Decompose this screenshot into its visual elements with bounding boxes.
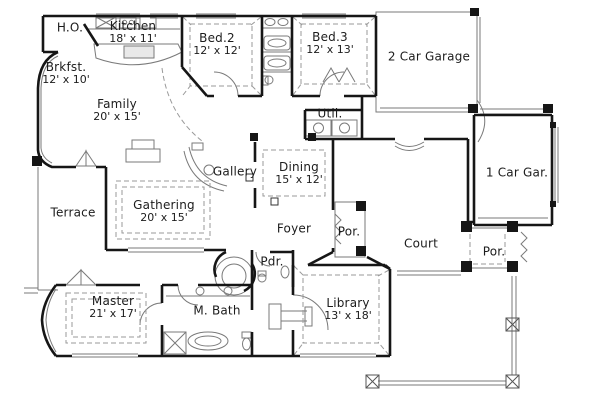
room-label-terrace: Terrace xyxy=(50,206,95,219)
room-label-pdr: Pdr. xyxy=(260,255,283,268)
room-labels: H.O. Kitchen18' x 11' Bed.212' x 12' Bed… xyxy=(0,0,600,401)
room-label-util: Util. xyxy=(318,107,343,120)
room-label-court: Court xyxy=(404,237,438,250)
floor-plan: H.O. Kitchen18' x 11' Bed.212' x 12' Bed… xyxy=(0,0,600,401)
room-label-master: Master21' x 17' xyxy=(89,295,137,321)
room-label-family: Family20' x 15' xyxy=(93,98,141,124)
room-label-ho: H.O. xyxy=(57,21,83,34)
room-label-mbath: M. Bath xyxy=(193,304,240,317)
room-label-por-front: Por. xyxy=(338,225,361,238)
room-label-gallery: Gallery xyxy=(213,165,257,178)
room-label-garage1: 1 Car Gar. xyxy=(486,166,548,179)
room-label-por-right: Por. xyxy=(483,245,506,258)
room-label-garage2: 2 Car Garage xyxy=(388,50,470,63)
room-label-library: Library13' x 18' xyxy=(324,297,372,323)
room-label-gathering: Gathering20' x 15' xyxy=(133,199,195,225)
room-label-kitchen: Kitchen18' x 11' xyxy=(109,20,157,46)
room-label-foyer: Foyer xyxy=(277,222,311,235)
room-label-bed2: Bed.212' x 12' xyxy=(193,32,241,58)
room-label-bed3: Bed.312' x 13' xyxy=(306,31,354,57)
room-label-brkfst: Brkfst.12' x 10' xyxy=(42,61,90,87)
room-label-dining: Dining15' x 12' xyxy=(275,161,323,187)
